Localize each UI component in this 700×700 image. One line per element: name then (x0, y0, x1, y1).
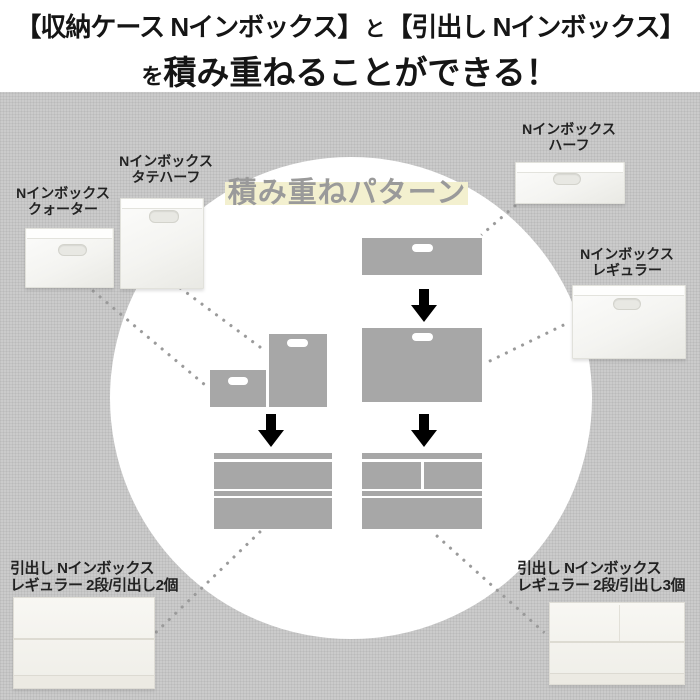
product-label-quarter: Nインボックス クォーター (6, 185, 120, 217)
product-label-tatehalf-line2: タテハーフ (108, 169, 224, 185)
diagram-drawer-3units (362, 453, 482, 529)
headline-line1: 【収納ケース Nインボックス】と【引出し Nインボックス】 (0, 7, 700, 44)
product-label-drawer2-line1: 引出し Nインボックス (10, 560, 220, 577)
diagram-drawer-cell (362, 462, 421, 489)
product-label-quarter-line1: Nインボックス (6, 185, 120, 201)
diagram-drawer-row (214, 498, 332, 529)
diagram-drawer-row (214, 462, 332, 489)
product-photo-regular (572, 285, 686, 359)
handle-hole (553, 173, 581, 185)
handle-hole (149, 210, 179, 223)
diagram-box-quarter (210, 370, 266, 407)
arrow-down-icon (411, 414, 437, 447)
arrow-down-icon (411, 289, 437, 322)
product-label-drawer3-line1: 引出し Nインボックス (517, 560, 700, 577)
product-label-drawer3-line2: レギュラー 2段/引出し3個 (517, 577, 700, 594)
product-label-drawer2: 引出し Nインボックス レギュラー 2段/引出し2個 (10, 560, 220, 594)
diagram-drawer-2units (214, 453, 332, 529)
headline-claim: 積み重ねることができる！ (163, 54, 558, 91)
product-photo-tatehalf (120, 198, 204, 289)
product-label-tatehalf-line1: Nインボックス (108, 153, 224, 169)
diagram-box-half (362, 238, 482, 275)
product-photo-drawer2 (13, 597, 155, 689)
product-label-tatehalf: Nインボックス タテハーフ (108, 153, 224, 185)
product-photo-half (515, 162, 625, 204)
diagram-drawer-cell (424, 462, 483, 489)
box-rim (574, 286, 684, 296)
product-label-half-line1: Nインボックス (510, 121, 628, 137)
headline-connector: と (362, 18, 386, 41)
headline-banner: 【収納ケース Nインボックス】と【引出し Nインボックス】 を積み重ねることがで… (0, 0, 700, 92)
handle-cutout (412, 244, 433, 252)
product-label-regular: Nインボックス レギュラー (568, 246, 686, 278)
box-rim (517, 163, 623, 173)
handle-cutout (228, 377, 248, 385)
product-label-half-line2: ハーフ (510, 137, 628, 153)
product-label-regular-line1: Nインボックス (568, 246, 686, 262)
drawer-base (550, 673, 684, 684)
product-label-regular-line2: レギュラー (568, 262, 686, 278)
drawer-divider (550, 641, 684, 643)
box-rim (27, 229, 112, 239)
handle-hole (58, 244, 87, 256)
headline-particle: を (141, 64, 163, 89)
drawer-base (14, 675, 154, 688)
pattern-title: 積み重ねパターン (222, 169, 472, 211)
product-label-quarter-line2: クォーター (6, 201, 120, 217)
arrow-down-icon (258, 414, 284, 447)
headline-drawer-name: 【引出し Nインボックス】 (386, 12, 684, 42)
product-label-half: Nインボックス ハーフ (510, 121, 628, 153)
handle-hole (613, 298, 641, 310)
handle-cutout (412, 333, 433, 341)
diagram-drawer-row (362, 498, 482, 529)
box-rim (122, 199, 202, 209)
headline-line2: を積み重ねることができる！ (0, 46, 700, 94)
diagram-drawer-split-row (362, 462, 482, 489)
product-label-drawer3: 引出し Nインボックス レギュラー 2段/引出し3個 (517, 560, 700, 594)
drawer-vertical-divider (619, 605, 620, 641)
product-label-drawer2-line2: レギュラー 2段/引出し2個 (10, 577, 220, 594)
stacking-pattern-infographic: 【収納ケース Nインボックス】と【引出し Nインボックス】 を積み重ねることがで… (0, 0, 700, 700)
product-photo-quarter (25, 228, 114, 288)
diagram-box-tatehalf (269, 334, 327, 407)
handle-cutout (287, 339, 308, 347)
headline-case-name: 【収納ケース Nインボックス】 (15, 12, 362, 42)
drawer-divider (14, 638, 154, 640)
diagram-box-regular (362, 328, 482, 402)
product-photo-drawer3 (549, 602, 685, 685)
